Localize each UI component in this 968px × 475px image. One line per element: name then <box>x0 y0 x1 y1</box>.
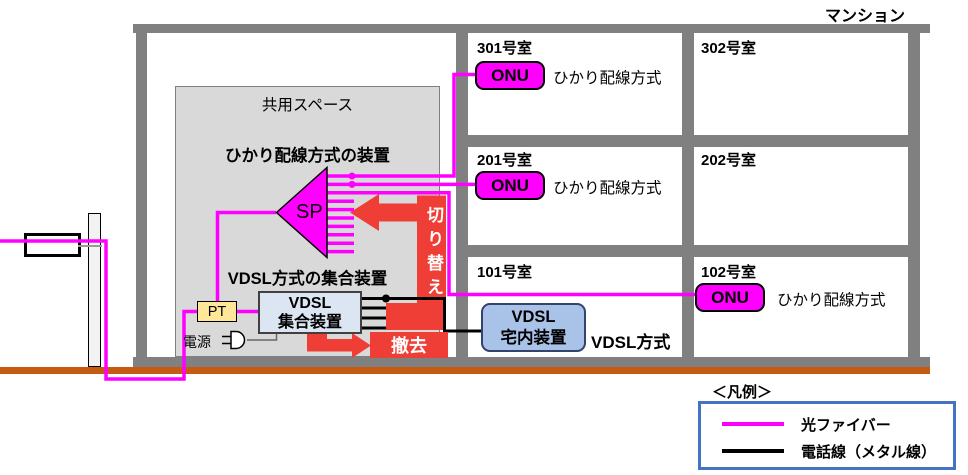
room-301-label: 301号室 <box>477 37 532 58</box>
optical-section-label: ひかり配線方式の装置 <box>175 142 440 166</box>
vdsl-home-unit-line1: VDSL <box>511 307 555 328</box>
method-102-label: ひかり配線方式 <box>777 288 886 310</box>
onu-102: ONU <box>695 283 765 312</box>
switch-over-label: 切り替え <box>421 206 446 331</box>
ground-line <box>0 367 930 374</box>
method-201-label: ひかり配線方式 <box>553 176 662 198</box>
building-right-wall <box>908 24 920 358</box>
onu-201: ONU <box>475 171 545 200</box>
room-201-label: 201号室 <box>477 149 532 170</box>
legend-fiber-label: 光ファイバー <box>801 414 891 435</box>
legend-metal-label: 電話線（メタル線） <box>801 441 936 462</box>
vdsl-home-unit: VDSL 宅内装置 <box>481 303 586 352</box>
aerial-closure-box <box>24 233 81 257</box>
room-302-label: 302号室 <box>701 37 756 58</box>
onu-301: ONU <box>475 61 545 90</box>
pt-terminal: PT <box>197 301 237 322</box>
room-102-label: 102号室 <box>701 261 756 282</box>
rooms-middle-wall <box>682 24 694 358</box>
splitter-label: SP <box>296 201 323 224</box>
room-202-label: 202号室 <box>701 149 756 170</box>
vdsl-aggregator-line1: VDSL <box>289 294 332 313</box>
shared-space-label: 共用スペース <box>175 93 440 115</box>
vdsl-home-unit-line2: 宅内装置 <box>501 328 567 349</box>
method-101-label: VDSL方式 <box>591 328 670 353</box>
building-title: マンション <box>825 2 905 26</box>
removal-label-box: 撤去 <box>370 332 448 358</box>
legend-title: ＜凡例＞ <box>712 381 772 402</box>
building-top-beam <box>133 24 930 33</box>
utility-pole <box>88 213 101 367</box>
vdsl-section-label: VDSL方式の集合装置 <box>175 265 440 289</box>
building-left-wall <box>136 24 147 358</box>
vdsl-aggregator: VDSL 集合装置 <box>258 291 362 334</box>
metal-line-swatch <box>722 449 784 453</box>
method-301-label: ひかり配線方式 <box>553 66 662 88</box>
power-label: 電源 <box>183 332 211 352</box>
rooms-left-wall <box>456 24 468 358</box>
fiber-line-swatch <box>722 422 784 426</box>
room-101-label: 101号室 <box>477 261 532 282</box>
network-migration-diagram: マンション 共用スペース ひかり配線方式の装置 SP VDSL方式の集合装置 3… <box>0 0 968 475</box>
floor-slab-3f-2f <box>456 135 920 147</box>
floor-slab-2f-1f <box>456 245 920 257</box>
vdsl-aggregator-line2: 集合装置 <box>278 313 342 332</box>
